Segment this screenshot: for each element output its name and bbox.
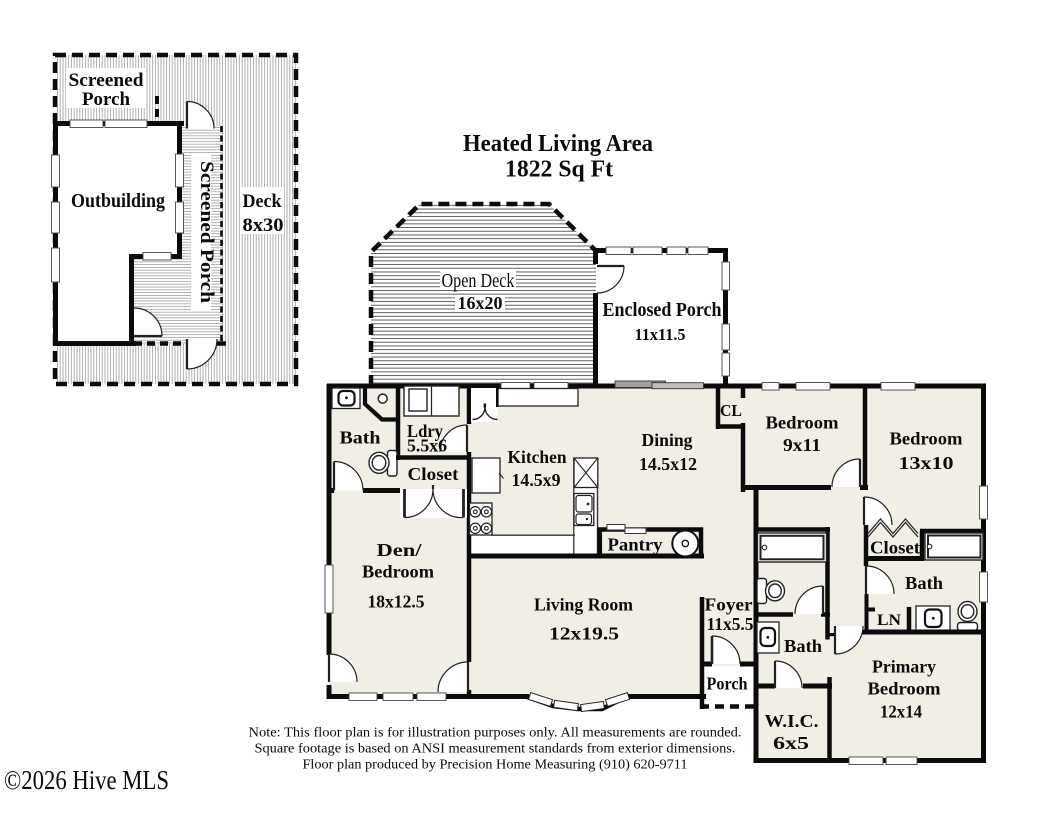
svg-text:Primary: Primary	[872, 657, 936, 677]
svg-text:LN: LN	[877, 612, 901, 629]
svg-text:Outbuilding: Outbuilding	[71, 190, 165, 212]
svg-text:Floor plan produced by Precisi: Floor plan produced by Precision Home Me…	[303, 758, 688, 773]
svg-text:Porch: Porch	[707, 674, 748, 694]
svg-text:Dining: Dining	[642, 430, 693, 450]
svg-text:Bedroom: Bedroom	[766, 413, 839, 433]
svg-text:6x5: 6x5	[773, 733, 809, 753]
svg-text:8x30: 8x30	[243, 215, 284, 236]
svg-text:Porch: Porch	[82, 89, 130, 110]
svg-text:©2026 Hive MLS: ©2026 Hive MLS	[4, 765, 169, 795]
svg-text:Den/: Den/	[377, 540, 423, 560]
svg-text:Kitchen: Kitchen	[508, 447, 567, 467]
svg-text:1822 Sq Ft: 1822 Sq Ft	[505, 157, 613, 183]
svg-text:Bedroom: Bedroom	[868, 679, 941, 699]
svg-text:16x20: 16x20	[458, 293, 503, 313]
svg-text:14.5x9: 14.5x9	[512, 470, 561, 490]
svg-text:Bath: Bath	[784, 636, 822, 656]
svg-text:Closet: Closet	[408, 464, 459, 484]
svg-text:11x11.5: 11x11.5	[635, 325, 686, 344]
svg-text:12x14: 12x14	[880, 702, 922, 722]
svg-text:18x12.5: 18x12.5	[368, 592, 425, 612]
svg-text:W.I.C.: W.I.C.	[765, 711, 819, 731]
svg-text:Bedroom: Bedroom	[890, 429, 963, 449]
svg-text:14.5x12: 14.5x12	[639, 454, 697, 474]
svg-text:Heated Living Area: Heated Living Area	[463, 131, 653, 157]
svg-text:13x10: 13x10	[899, 453, 954, 473]
svg-text:Bath: Bath	[905, 573, 943, 593]
svg-text:Square footage is based on ANS: Square footage is based on ANSI measurem…	[255, 742, 736, 757]
svg-text:CL: CL	[720, 401, 742, 420]
svg-text:Bath: Bath	[340, 428, 381, 448]
svg-text:11x5.5: 11x5.5	[707, 614, 754, 634]
svg-text:5.5x6: 5.5x6	[407, 436, 447, 456]
svg-text:Bedroom: Bedroom	[362, 562, 434, 582]
svg-text:12x19.5: 12x19.5	[549, 624, 619, 644]
svg-text:9x11: 9x11	[783, 435, 821, 455]
svg-text:Living Room: Living Room	[534, 595, 633, 615]
svg-text:Deck: Deck	[243, 191, 282, 212]
svg-text:Foyer: Foyer	[705, 595, 753, 615]
svg-text:Screened Porch: Screened Porch	[196, 161, 217, 303]
svg-text:Open Deck: Open Deck	[442, 270, 515, 292]
svg-text:Closet: Closet	[870, 538, 920, 558]
svg-text:Screened: Screened	[69, 70, 144, 91]
svg-text:Enclosed Porch: Enclosed Porch	[603, 299, 722, 321]
svg-text:Note: This floor plan is for i: Note: This floor plan is for illustratio…	[249, 726, 742, 741]
svg-text:Pantry: Pantry	[608, 535, 663, 555]
